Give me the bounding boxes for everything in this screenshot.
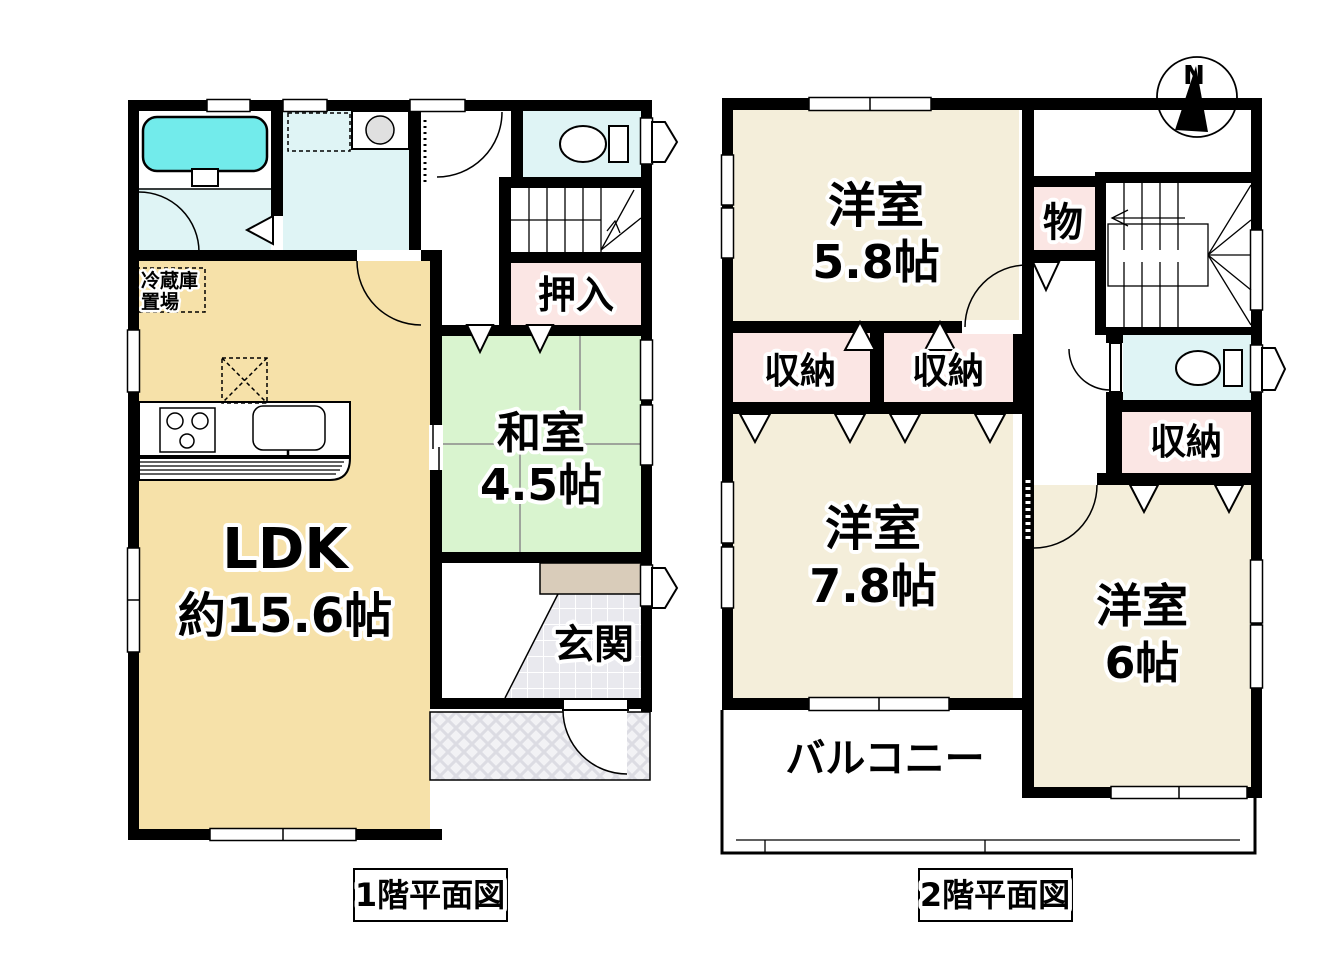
yoshitsu-58-doorway-gap [962, 320, 1022, 334]
caption-floor2: 2階平面図 [919, 869, 1072, 921]
kitchen-counter [139, 402, 350, 480]
stove-burner [167, 413, 183, 429]
floorplan-canvas: 冷蔵庫 置場 LDK 約15.6帖 和室 4.5帖 押入 玄関 [0, 0, 1328, 963]
hall-opening-marker [1033, 262, 1059, 290]
floorplan-page: 冷蔵庫 置場 LDK 約15.6帖 和室 4.5帖 押入 玄関 [0, 0, 1328, 963]
toilet-2f-door-arc [1069, 349, 1110, 390]
hall-door-arc-top [437, 112, 502, 177]
toilet-1f-window-marker [652, 122, 677, 162]
fridge-label-line1: 冷蔵庫 [141, 269, 198, 292]
sink [253, 406, 325, 450]
compass: N [1157, 57, 1237, 137]
floor1-plan: 冷蔵庫 置場 LDK 約15.6帖 和室 4.5帖 押入 玄関 [128, 100, 678, 841]
caption-floor2-text: 2階平面図 [920, 876, 1070, 914]
bathtub [143, 117, 267, 171]
ldk-doorway-gap [357, 250, 421, 261]
floor2-plan: 洋室 5.8帖 物 収納 収納 収納 洋室 7.8帖 洋室 6帖 バルコニー [722, 98, 1286, 854]
bath-faucet-ledge [192, 169, 218, 186]
washing-machine-drum [366, 116, 394, 144]
room-genkan-label: 玄関 [554, 622, 634, 668]
room-washitsu-label: 和室 [497, 408, 585, 459]
caption-floor1: 1階平面図 [354, 869, 507, 921]
room-yoshitsu-6-label: 洋室 [1096, 579, 1188, 633]
north-label: N [1183, 61, 1205, 91]
toilet-fixture-1f [560, 126, 628, 162]
stove-burner [192, 413, 208, 429]
entrance-door-leaf [563, 699, 628, 710]
room-yoshitsu-6-size: 6帖 [1105, 638, 1180, 689]
fridge-label-line2: 置場 [141, 291, 179, 313]
toilet-fixture-2f [1176, 350, 1242, 386]
toilet-2f-door-leaf [1110, 343, 1121, 392]
room-ldk-label: LDK [222, 517, 350, 582]
caption-floor1-text: 1階平面図 [355, 876, 505, 914]
room-yoshitsu-6 [1034, 485, 1251, 787]
sliding-door-ldk-washitsu [429, 425, 443, 470]
genkan-side-window-marker [652, 568, 677, 608]
room-yoshitsu-58-label: 洋室 [828, 178, 924, 234]
room-shuno-a-label: 収納 [764, 351, 836, 392]
stove-burner [180, 434, 194, 448]
balcony-label: バルコニー [785, 736, 984, 782]
room-mono-label: 物 [1043, 200, 1083, 246]
room-yoshitsu-78-size: 7.8帖 [809, 559, 937, 613]
shoe-cabinet [540, 563, 641, 594]
room-oshiire-label: 押入 [538, 273, 614, 317]
counter-front [139, 458, 350, 480]
room-yoshitsu-78-label: 洋室 [825, 501, 921, 557]
room-shuno-b-label: 収納 [912, 351, 984, 392]
room-shuno-c-label: 収納 [1150, 422, 1222, 463]
room-yoshitsu-58-size: 5.8帖 [812, 235, 940, 289]
room-ldk-size: 約15.6帖 [178, 588, 392, 644]
toilet-2f-window-marker [1262, 348, 1285, 390]
room-washitsu-size: 4.5帖 [480, 460, 602, 511]
